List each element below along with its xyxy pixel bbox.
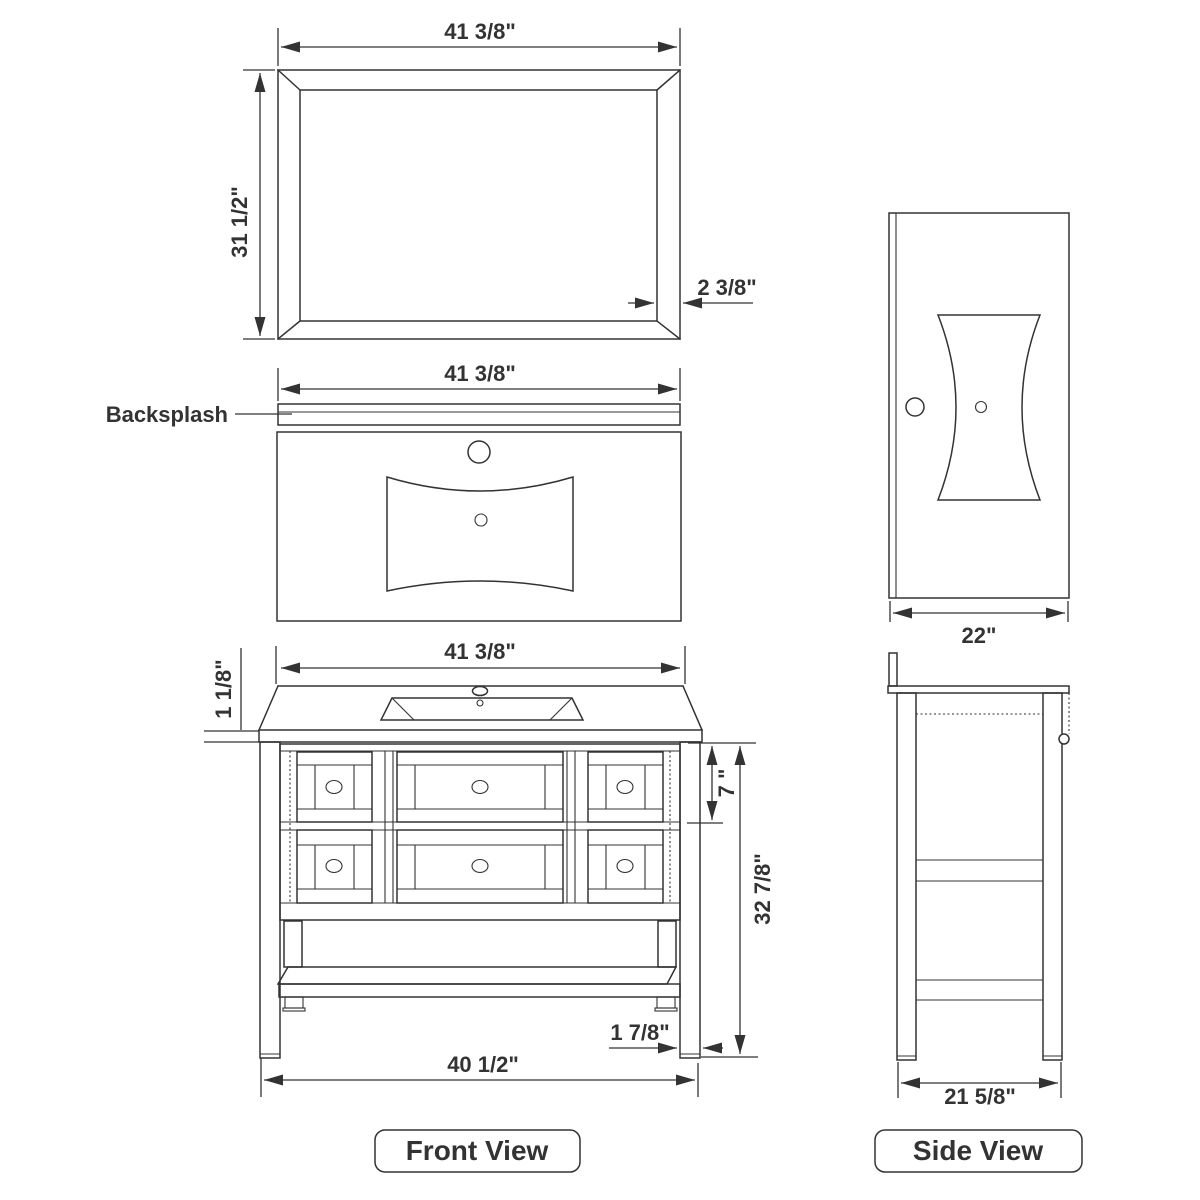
shelf-bottom-rail [279,984,680,997]
base-width-dimension: 40 1/2" [261,1052,698,1097]
countertop-width-dimension: 41 3/8" [278,361,680,401]
side-drawer-knob-icon [1059,734,1069,744]
drawer-knob-icon [326,860,342,873]
base-width-dim-text: 40 1/2" [447,1052,519,1077]
drawer-top-left [297,752,372,822]
side-counter-profile [888,653,1069,693]
side-view-label-text: Side View [913,1135,1043,1166]
front-drain-icon [477,700,483,706]
front-width-dimension: 41 3/8" [276,639,685,684]
drawer-bottom-left [297,830,372,903]
drain-hole-icon [475,514,487,526]
side-counter-deck [889,213,1069,598]
front-view: 41 3/8" 1 1/8" [204,639,775,1172]
side-view-label: Side View [875,1130,1082,1172]
drawer-knob-icon [617,781,633,794]
cabinet-face [280,744,680,920]
drawer-knob-icon [326,781,342,794]
drawer-top-center [397,752,563,822]
drawer-height-dim-text: 7 " [714,769,739,798]
mirror-outer-frame [278,70,680,339]
mirror-front-view [278,70,680,339]
front-faucet-hole-icon [473,687,488,696]
shelf-left-post [284,921,302,967]
side-counter-slab [888,686,1069,693]
side-front-leg [897,693,916,1060]
side-sink-basin [938,315,1040,500]
backsplash-label: Backsplash [106,402,228,427]
leg-width-dim-text: 1 7/8" [610,1020,669,1045]
mirror-frame-dim-text: 2 3/8" [697,275,756,300]
drawer-knob-icon [472,781,488,794]
mirror-inner-frame [300,90,657,321]
front-countertop [259,686,702,742]
drawer-height-dimension: 7 " [687,743,756,823]
countertop-top-view [277,432,681,621]
counter-thickness-dimension: 1 1/8" [204,648,259,742]
depth-dim-text: 22" [962,623,997,648]
depth-dimension: 22" [890,601,1068,648]
base-depth-dimension: 21 5/8" [898,1062,1061,1109]
sink-basin-top-view [387,477,573,591]
shelf-left-foot [283,997,305,1011]
side-view: 22" 21 5/8" Side View [875,213,1082,1172]
drawing-canvas: 41 3/8" 31 1/2" 2 3/8" 41 3/8" Backsplas… [0,0,1200,1200]
side-drain-icon [976,402,987,413]
drawer-top-right [588,752,663,822]
front-width-dim-text: 41 3/8" [444,639,516,664]
leg-width-dimension: 1 7/8" [609,1020,723,1048]
mirror-height-dim-text: 31 1/2" [227,186,252,258]
counter-front-edge [259,730,702,742]
front-view-label-text: Front View [406,1135,549,1166]
mirror-frame-thickness-dimension: 2 3/8" [628,275,757,303]
slatted-shelf [278,967,676,984]
drawer-bottom-right [588,830,663,903]
shelf-right-post [658,921,676,967]
shelf-right-foot [655,997,677,1011]
mirror-width-dimension: 41 3/8" [278,19,680,66]
counter-thickness-dim-text: 1 1/8" [211,659,236,718]
base-depth-dim-text: 21 5/8" [944,1084,1016,1109]
vanity-dimension-drawing: 41 3/8" 31 1/2" 2 3/8" 41 3/8" Backsplas… [0,0,1200,1200]
front-left-leg [260,742,280,1058]
side-rear-leg [1043,693,1062,1060]
open-shelf [278,921,680,1011]
mirror-width-dim-text: 41 3/8" [444,19,516,44]
faucet-hole-icon [468,441,490,463]
countertop-width-dim-text: 41 3/8" [444,361,516,386]
mirror-height-dimension: 31 1/2" [227,70,275,339]
countertop-surface [277,432,681,621]
backsplash-callout: Backsplash [106,402,292,427]
mirror-bevel-corners [278,70,680,339]
front-right-leg [680,742,700,1058]
cabinet-height-dim-text: 32 7/8" [750,853,775,925]
side-backsplash-profile [889,653,897,686]
front-view-label: Front View [375,1130,580,1172]
drawer-knob-icon [472,860,488,873]
side-faucet-hole-icon [906,398,924,416]
drawer-knob-icon [617,860,633,873]
drawer-bottom-center [397,830,563,903]
backsplash-strip [278,404,680,425]
side-panels [916,693,1069,1000]
